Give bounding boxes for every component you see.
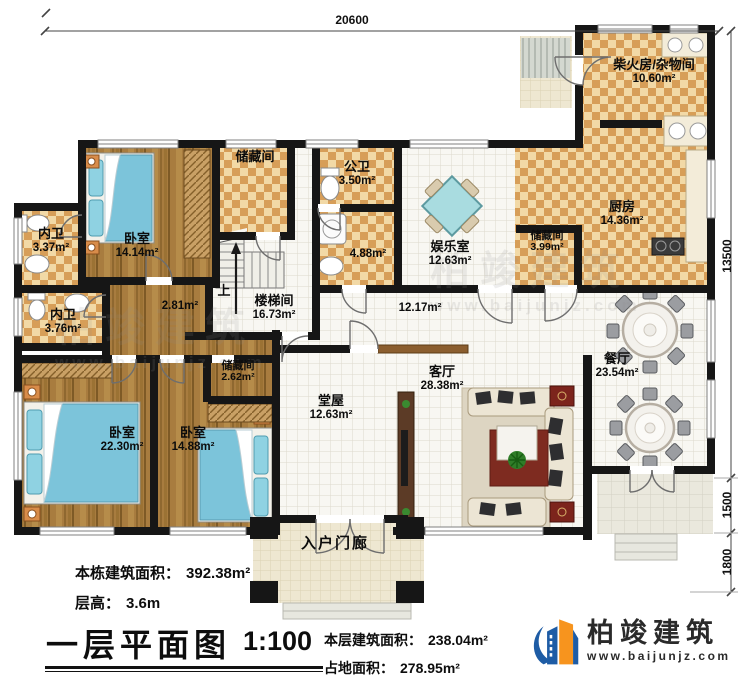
floor-area-label: 本层建筑面积：: [324, 632, 422, 648]
wardrobe-icon: [208, 404, 272, 422]
wood-beam: [378, 345, 468, 353]
room-label-main-hall: 堂屋12.63m²: [310, 394, 353, 421]
tv-cabinet-icon: [398, 392, 414, 525]
stove-icon: [652, 238, 684, 255]
building-area-label: 本栋建筑面积：: [75, 565, 180, 582]
dim-top: 20600: [333, 13, 370, 27]
company-logo: 柏竣建筑 www.baijunjz.com: [528, 612, 731, 670]
dim-right-terrace: 1500: [720, 490, 734, 521]
wardrobe-icon: [184, 150, 210, 258]
room-label-stair-hall: 楼梯间16.73m²: [253, 294, 296, 321]
baijun-logo-icon: [528, 612, 580, 670]
room-label-hallway: 12.17m²: [399, 302, 442, 315]
room-label-living: 客厅28.38m²: [421, 365, 464, 392]
room-label-ensuite-1: 内卫3.37m²: [33, 227, 69, 254]
room-label-kitchen: 厨房14.36m²: [601, 200, 644, 227]
room-label-ensuite-2: 内卫3.76m²: [45, 308, 81, 335]
floor-height-label: 层高：: [75, 595, 120, 612]
drawing-scale: 1:100: [243, 626, 312, 657]
room-label-recreation: 娱乐室12.63m²: [429, 240, 472, 267]
floor-height-value: 3.6m: [126, 595, 160, 612]
floorplan-drawing: [0, 0, 750, 691]
building-area-value: 392.38m²: [186, 565, 250, 582]
floor-height-line: 层高：3.6m: [75, 592, 160, 613]
footprint-label: 占地面积：: [324, 660, 394, 676]
floorplan-page: 柏竣建筑 www.baijunjz.com 柏竣建筑 www.baijunjz.…: [0, 0, 750, 691]
floor-area-value: 238.04m²: [428, 632, 488, 648]
room-label-bedroom-2: 卧室22.30m²: [101, 426, 144, 453]
sink-icon: [25, 255, 49, 273]
room-label-bedroom-1: 卧室14.14m²: [116, 232, 159, 259]
building-area-line: 本栋建筑面积：392.38m²: [75, 562, 250, 583]
toilet-icon: [28, 293, 45, 320]
stairs-up-label: 上: [217, 284, 230, 299]
room-label-entry-porch: 入户门廊: [301, 536, 369, 553]
room-label-bath: 4.88m²: [350, 248, 386, 261]
logo-url: www.baijunjz.com: [587, 649, 731, 663]
toilet-icon: [321, 168, 339, 200]
floor-area-line: 本层建筑面积：238.04m²: [324, 630, 488, 650]
room-label-corridor: 2.81m²: [162, 300, 198, 313]
room-label-storage-top: 储藏间: [235, 150, 274, 165]
room-label-public-bath: 公卫3.50m²: [339, 160, 375, 187]
sink-icon: [319, 257, 343, 275]
room-label-storage-small: 储藏间2.62m²: [221, 360, 254, 384]
room-label-dining: 餐厅23.54m²: [596, 352, 639, 379]
room-label-storage-kitchen: 储藏间3.99m²: [530, 230, 563, 254]
footprint-value: 278.95m²: [400, 660, 460, 676]
title-underline: [45, 666, 323, 672]
dim-right-steps: 1800: [720, 547, 734, 578]
wardrobe-icon: [20, 363, 112, 378]
footprint-line: 占地面积：278.95m²: [324, 658, 460, 678]
room-label-bedroom-3: 卧室14.88m²: [172, 426, 215, 453]
dim-right-main: 13500: [720, 237, 734, 274]
logo-name: 柏竣建筑: [587, 619, 731, 647]
room-label-firewood: 柴火房/杂物间10.60m²: [613, 58, 695, 85]
page-title: 一层平面图: [46, 620, 231, 666]
